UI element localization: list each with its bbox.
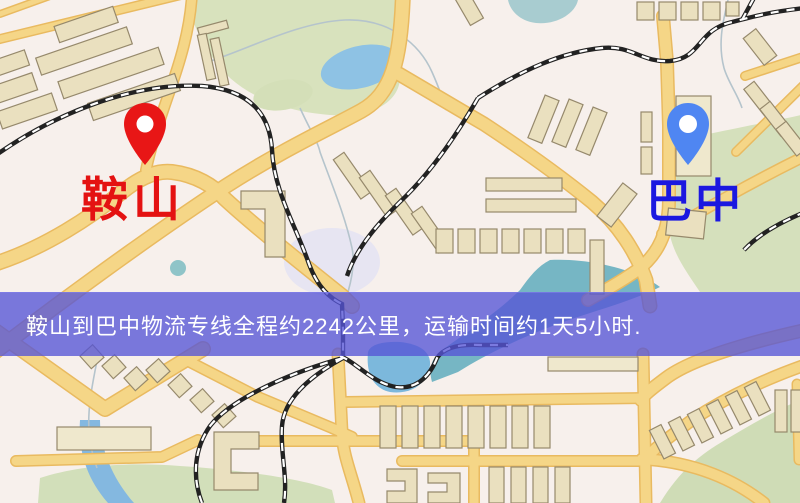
origin-city-label: 鞍山 [81, 176, 185, 223]
destination-pin-hole [679, 115, 697, 133]
map-view: 鞍山 巴中 鞍山到巴中物流专线全程约2242公里，运输时间约1天5小时. [0, 0, 800, 503]
destination-city-label: 巴中 [646, 178, 744, 224]
route-info-banner: 鞍山到巴中物流专线全程约2242公里，运输时间约1天5小时. [0, 292, 800, 356]
route-info-text: 鞍山到巴中物流专线全程约2242公里，运输时间约1天5小时. [0, 309, 642, 341]
map-background [0, 0, 800, 503]
destination-pin-shape [667, 103, 709, 165]
origin-pin-shape [124, 103, 166, 165]
origin-pin-hole [137, 116, 154, 133]
origin-pin-icon[interactable] [121, 101, 169, 167]
destination-pin-icon[interactable] [664, 101, 712, 167]
